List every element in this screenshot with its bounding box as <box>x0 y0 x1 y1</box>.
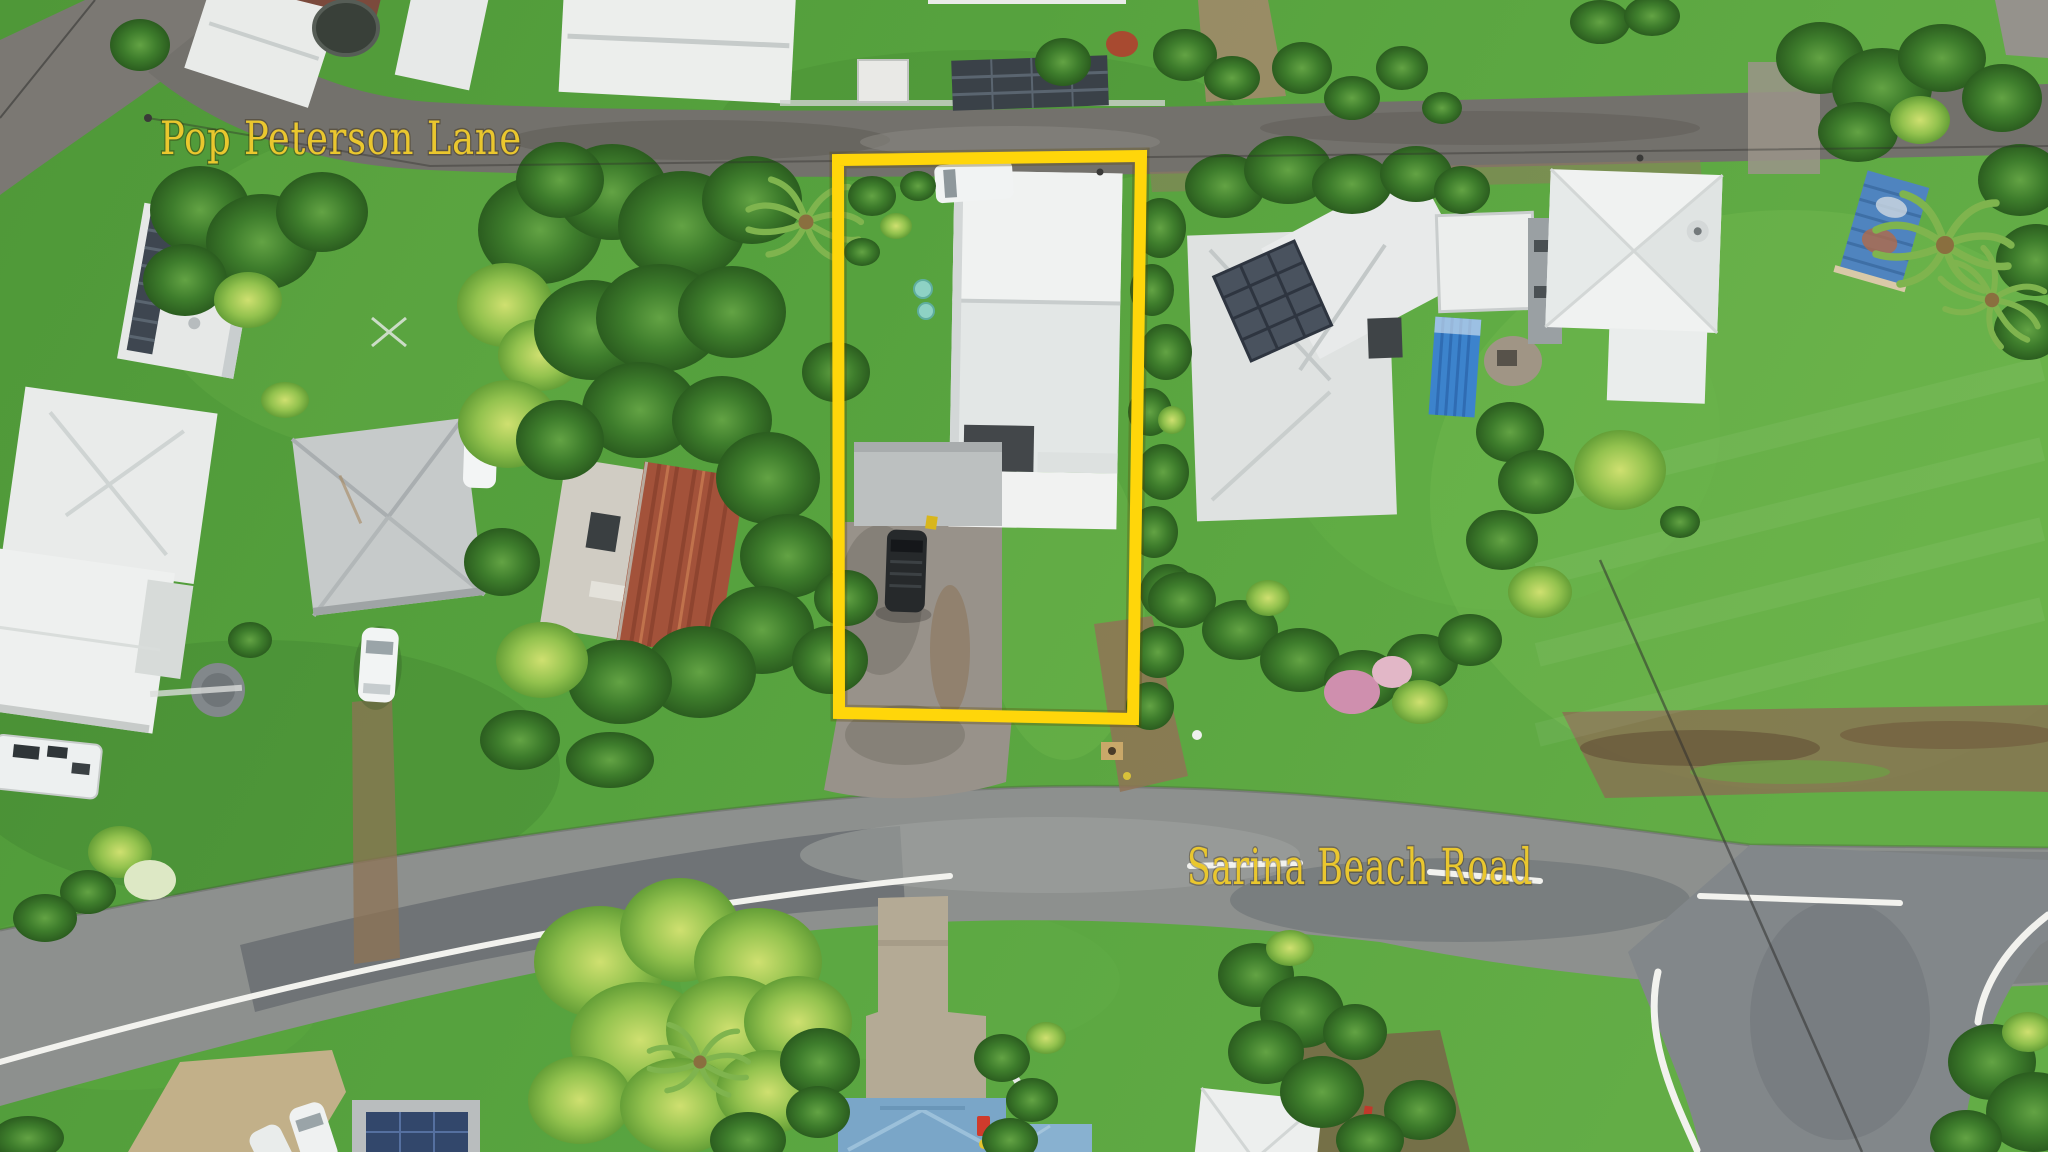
property-carport <box>854 442 1002 526</box>
house-far-right-wing <box>1607 328 1707 403</box>
carport-right <box>1436 212 1535 311</box>
aerial-photo: Pop Peterson Lane Sarina Beach Road <box>0 0 2048 1152</box>
flower-bush-pink <box>1324 670 1380 714</box>
deck-dark <box>1367 317 1402 358</box>
wheelie-bin-yellow <box>925 515 938 529</box>
house-far-right <box>1545 169 1722 333</box>
caravan <box>0 734 102 799</box>
street-label-sarina-beach-road: Sarina Beach Road <box>1187 838 1533 896</box>
house-mid-left-gray <box>292 418 484 616</box>
marker-dot-2 <box>1192 730 1202 740</box>
flower-bush-white <box>124 860 176 900</box>
red-leaf-plant <box>1106 31 1138 57</box>
building-bottom-left-solar <box>352 1100 480 1152</box>
roof-sliver-top <box>928 0 1126 4</box>
street-label-pop-peterson-lane: Pop Peterson Lane <box>160 111 522 165</box>
aerial-photo-canvas: Pop Peterson Lane Sarina Beach Road <box>0 0 2048 1152</box>
shipping-container-blue <box>1429 317 1482 418</box>
property-carport-edge <box>854 442 1002 452</box>
dirt-trail <box>352 698 400 964</box>
trampoline <box>314 1 378 55</box>
garden-shed-white <box>858 60 908 102</box>
tank-teal-1 <box>914 280 932 298</box>
dog-house <box>1497 350 1517 366</box>
tank-teal-2 <box>918 303 934 319</box>
house-top-left-3 <box>559 0 798 104</box>
